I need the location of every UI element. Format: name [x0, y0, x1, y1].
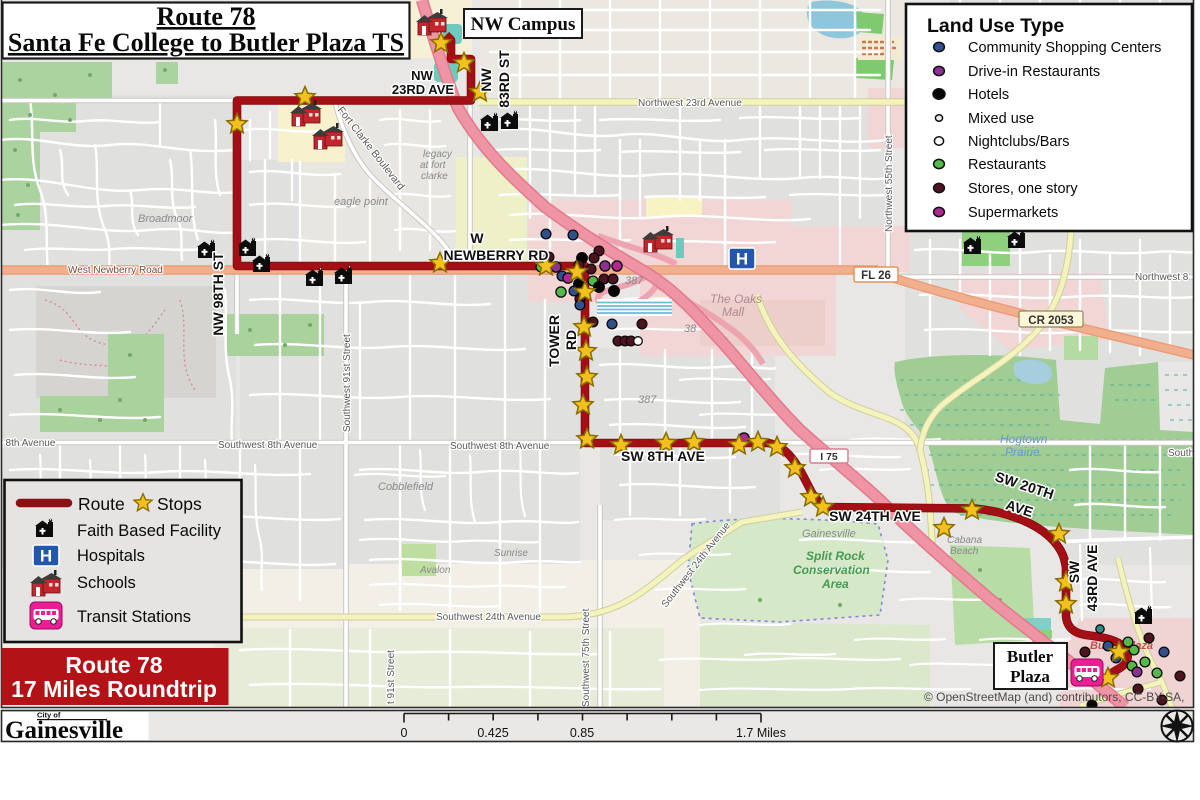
svg-text:West Newberry Road: West Newberry Road [68, 265, 163, 276]
svg-text:Split Rock: Split Rock [806, 549, 866, 563]
svg-text:Supermarkets: Supermarkets [968, 205, 1058, 221]
svg-text:Broadmoor: Broadmoor [138, 213, 194, 225]
svg-text:© OpenStreetMap (and) contribu: © OpenStreetMap (and) contributors, CC-B… [924, 690, 1185, 704]
svg-text:387: 387 [625, 275, 644, 287]
svg-text:Drive-in Restaurants: Drive-in Restaurants [968, 64, 1100, 80]
svg-text:TOWER: TOWER [546, 315, 562, 367]
svg-text:Avalon: Avalon [419, 565, 451, 576]
svg-text:NEWBERRY RD: NEWBERRY RD [443, 247, 548, 263]
svg-text:FL 26: FL 26 [861, 270, 891, 282]
svg-text:NW Campus: NW Campus [471, 14, 576, 35]
svg-text:Stores, one story: Stores, one story [968, 181, 1078, 197]
svg-text:Faith Based Facility: Faith Based Facility [77, 522, 222, 540]
svg-text:Mixed use: Mixed use [968, 111, 1034, 127]
svg-text:Northwest 8: Northwest 8 [1135, 272, 1189, 283]
svg-text:17 Miles Roundtrip: 17 Miles Roundtrip [11, 676, 217, 702]
svg-text:SW: SW [1066, 560, 1082, 583]
svg-text:Restaurants: Restaurants [968, 157, 1046, 173]
svg-text:Cabana: Cabana [947, 535, 982, 546]
svg-text:Beach: Beach [950, 546, 979, 557]
svg-text:Route: Route [78, 494, 125, 514]
svg-text:38: 38 [684, 323, 697, 335]
svg-text:0: 0 [401, 726, 408, 740]
svg-text:Plaza: Plaza [1010, 667, 1050, 686]
svg-text:Northwest 23rd Avenue: Northwest 23rd Avenue [638, 98, 742, 109]
svg-text:I 75: I 75 [820, 451, 838, 463]
svg-text:387: 387 [638, 394, 657, 406]
svg-text:NW: NW [478, 68, 494, 92]
svg-text:Route 78: Route 78 [157, 2, 256, 31]
svg-text:Nightclubs/Bars: Nightclubs/Bars [968, 134, 1070, 150]
svg-text:Hogtown: Hogtown [1000, 432, 1048, 446]
svg-text:Gainesville: Gainesville [5, 717, 123, 744]
svg-text:Conservation: Conservation [793, 563, 870, 577]
svg-text:SW 8TH AVE: SW 8TH AVE [621, 448, 705, 464]
svg-text:0.425: 0.425 [477, 726, 508, 740]
svg-text:23RD AVE: 23RD AVE [392, 82, 454, 97]
svg-text:Prairie: Prairie [1005, 445, 1040, 459]
svg-text:The Oaks: The Oaks [710, 292, 762, 306]
svg-text:clarke: clarke [421, 171, 448, 182]
svg-text:Southwest 75th Street: Southwest 75th Street [581, 608, 592, 707]
svg-text:t 91st Street: t 91st Street [386, 650, 397, 704]
svg-text:CR 2053: CR 2053 [1028, 315, 1073, 327]
svg-text:SW 24TH AVE: SW 24TH AVE [829, 508, 921, 524]
svg-text:83RD ST: 83RD ST [496, 50, 512, 108]
svg-text:Transit Stations: Transit Stations [77, 608, 191, 626]
svg-text:Route 78: Route 78 [65, 652, 162, 678]
svg-text:W: W [470, 230, 484, 246]
svg-text:Southwest 8th Avenue: Southwest 8th Avenue [218, 440, 318, 451]
svg-text:Southw: Southw [1168, 448, 1200, 459]
svg-text:Mall: Mall [722, 305, 744, 319]
svg-text:Cobblefield: Cobblefield [378, 481, 434, 493]
svg-text:Gainesville: Gainesville [802, 528, 856, 540]
svg-text:Hospitals: Hospitals [77, 547, 145, 565]
svg-text:Southwest 8th Avenue: Southwest 8th Avenue [450, 441, 550, 452]
svg-text:NW 98TH ST: NW 98TH ST [210, 252, 226, 336]
svg-text:Land Use Type: Land Use Type [927, 15, 1064, 37]
svg-text:Sunrise: Sunrise [494, 548, 528, 559]
svg-text:Area: Area [821, 577, 849, 591]
svg-text:Southwest 91st Street: Southwest 91st Street [342, 334, 353, 432]
svg-text:legacy: legacy [423, 149, 453, 160]
svg-text:43RD AVE: 43RD AVE [1084, 545, 1100, 612]
svg-text:RD: RD [563, 330, 579, 350]
svg-text:Hotels: Hotels [968, 87, 1009, 103]
svg-text:Northwest 55th Street: Northwest 55th Street [884, 135, 895, 232]
svg-text:Santa Fe College to Butler Pla: Santa Fe College to Butler Plaza TS [8, 28, 404, 57]
svg-text:t 8th Avenue: t 8th Avenue [0, 438, 56, 449]
svg-text:Southwest 24th Avenue: Southwest 24th Avenue [436, 612, 541, 623]
svg-text:eagle point: eagle point [334, 196, 389, 208]
svg-text:NW: NW [411, 68, 433, 83]
svg-text:Stops: Stops [157, 494, 202, 514]
svg-text:0.85: 0.85 [570, 726, 594, 740]
svg-text:Community Shopping Centers: Community Shopping Centers [968, 40, 1161, 56]
svg-text:at fort: at fort [420, 160, 447, 171]
svg-text:1.7 Miles: 1.7 Miles [736, 726, 786, 740]
svg-text:Butler: Butler [1007, 647, 1054, 666]
svg-text:Schools: Schools [77, 574, 136, 592]
